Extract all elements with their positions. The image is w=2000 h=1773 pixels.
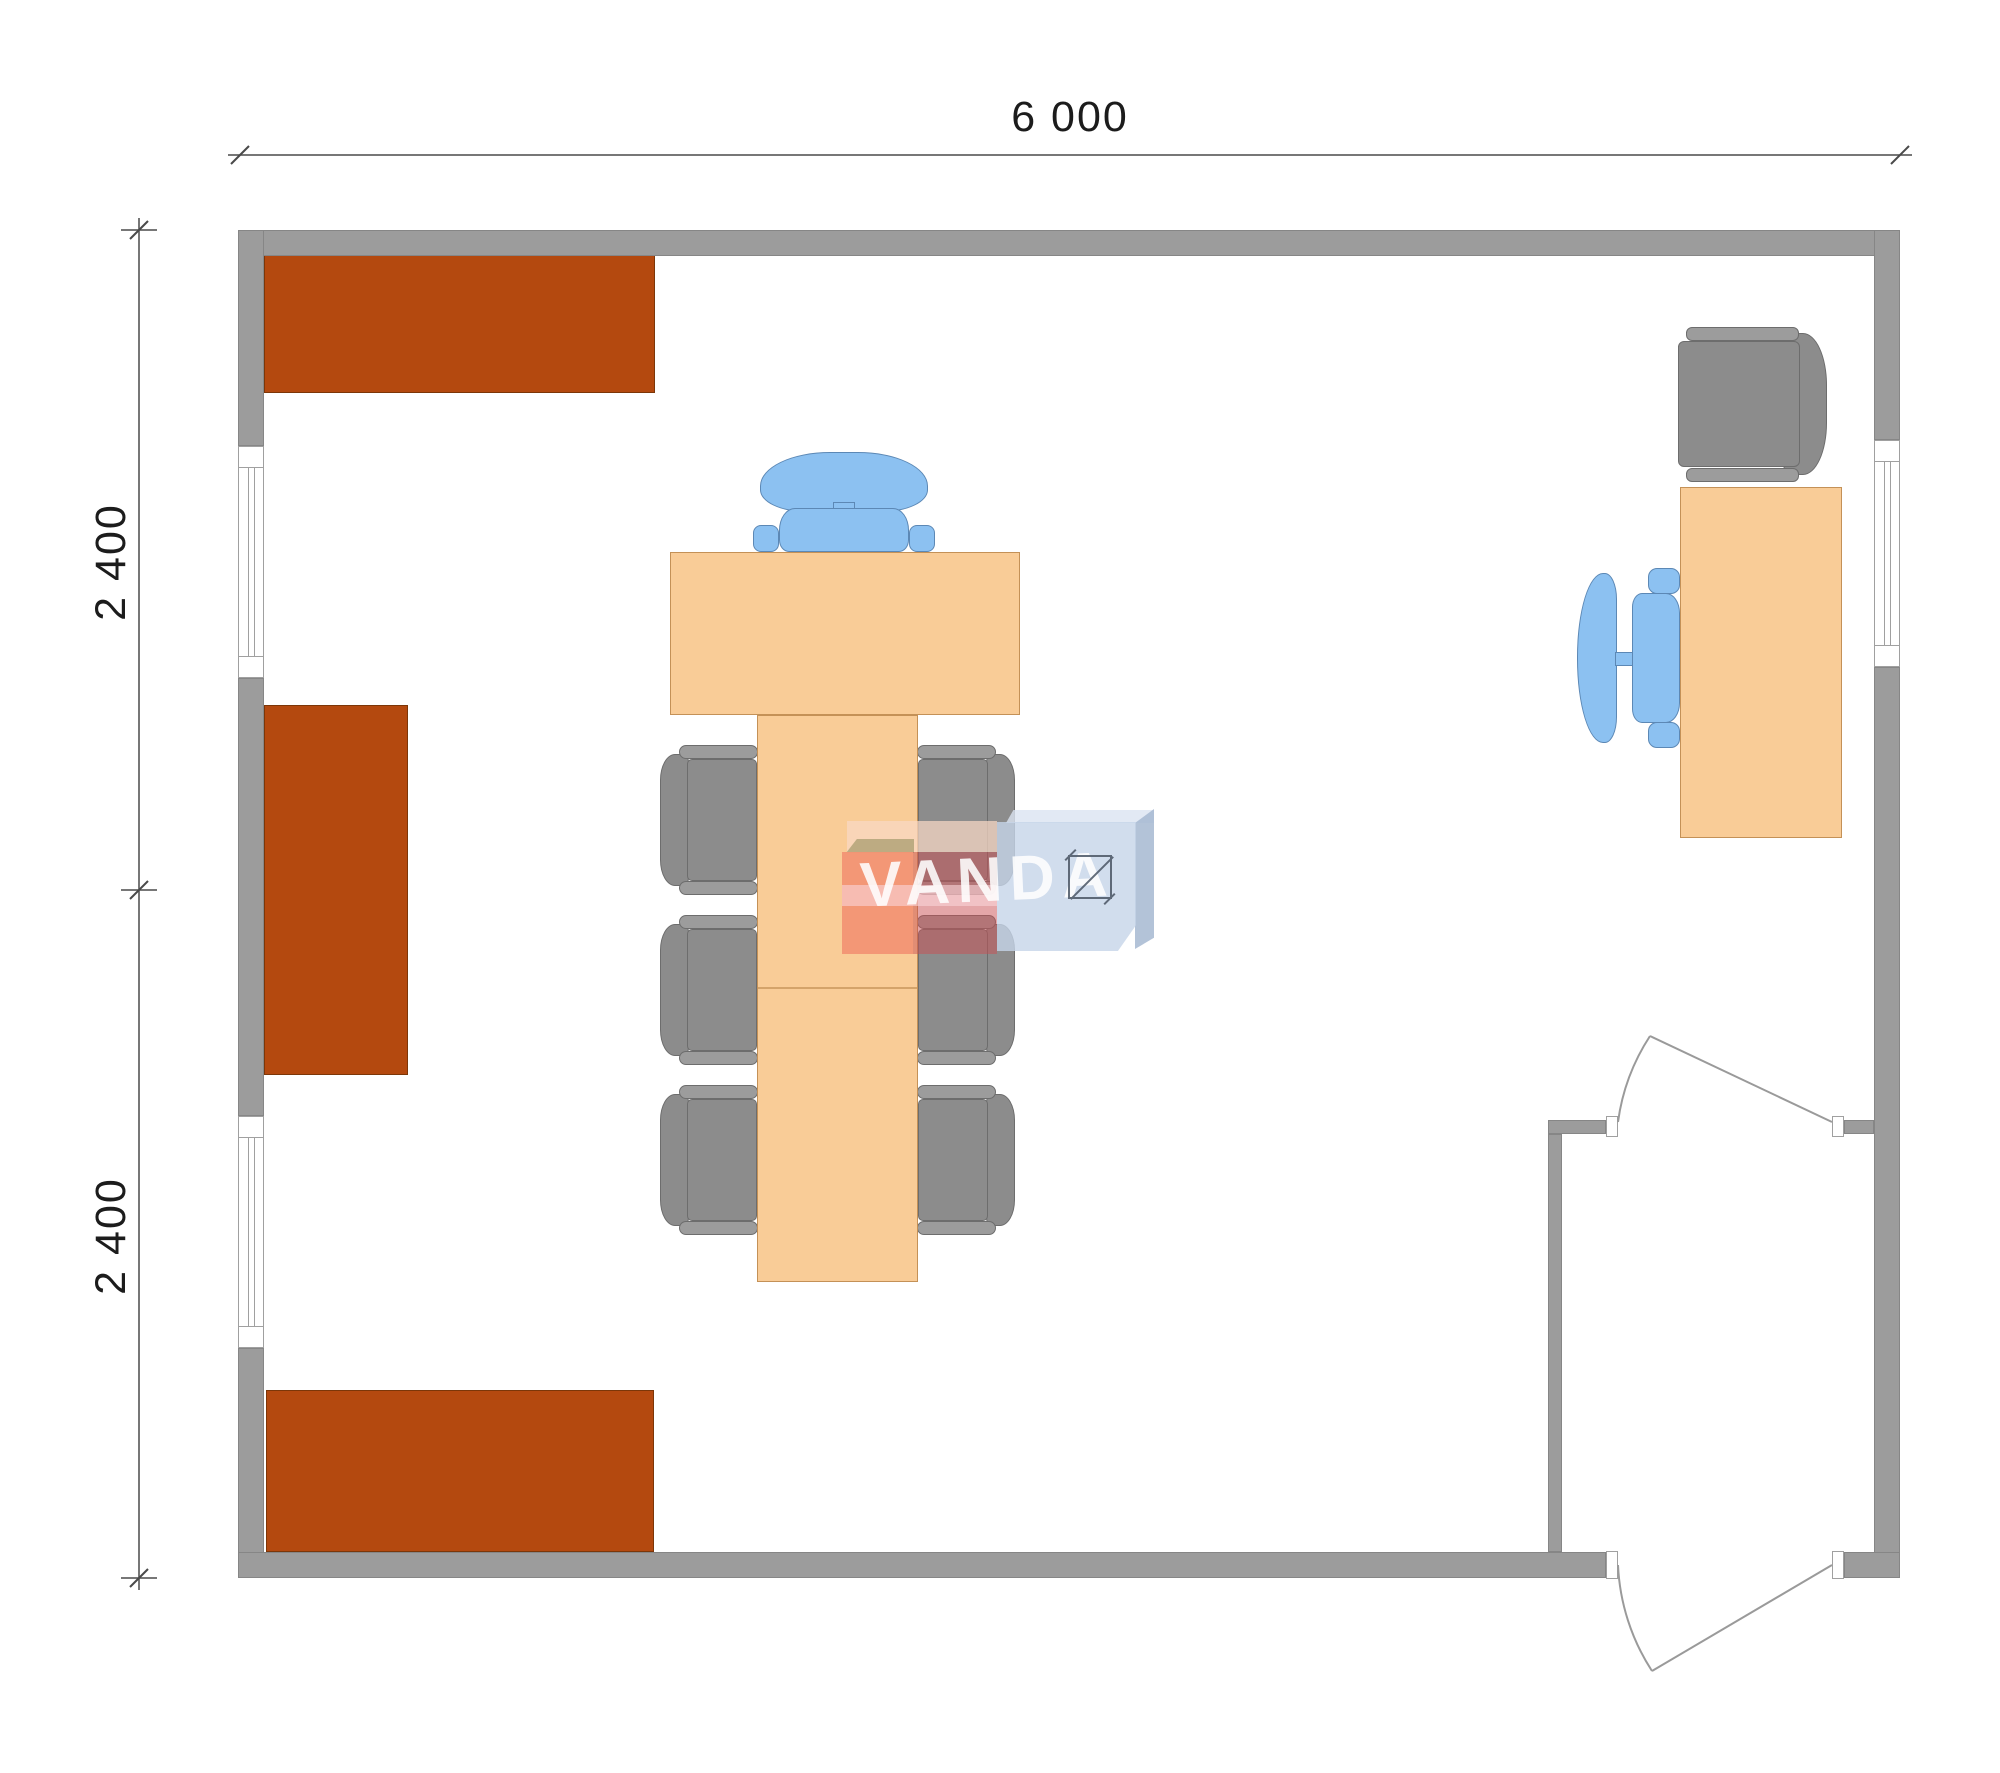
wall-bottom-segment-2 bbox=[1844, 1552, 1900, 1578]
conference-table-head bbox=[670, 552, 1020, 715]
chair-armrest bbox=[917, 745, 996, 759]
logo-blue-side-face bbox=[1135, 809, 1154, 949]
window-glazing bbox=[248, 1137, 255, 1327]
dimension-height-lower-label: 2 400 bbox=[87, 1126, 137, 1346]
wall-top bbox=[238, 230, 1900, 256]
chair-seat bbox=[918, 1099, 988, 1221]
vanda-watermark: VANDA bbox=[840, 805, 1162, 963]
wall-left-segment-1 bbox=[238, 230, 264, 446]
chair-armrest bbox=[917, 1051, 996, 1065]
window-right bbox=[1874, 440, 1900, 667]
chair-armrest bbox=[1648, 722, 1680, 748]
logo-square-diagonal-icon bbox=[1068, 855, 1112, 899]
window-frame-line bbox=[1875, 645, 1899, 646]
chair-armrest bbox=[1686, 327, 1799, 341]
chair-armrest bbox=[679, 1221, 758, 1235]
chair-armrest bbox=[917, 1085, 996, 1099]
entrance-door-jamb-left bbox=[1606, 1551, 1618, 1579]
window-frame-line bbox=[239, 1137, 263, 1138]
window-frame-line bbox=[1875, 461, 1899, 462]
entrance-door-swing bbox=[1618, 1565, 1832, 1671]
logo-blue-top-face bbox=[1006, 810, 1154, 823]
armchair bbox=[1678, 327, 1827, 482]
chair-armrest bbox=[679, 1085, 758, 1099]
cabinet-bottom bbox=[266, 1390, 654, 1552]
chair-back bbox=[660, 924, 689, 1056]
conference-table-long bbox=[757, 715, 918, 1282]
inner-door-swing bbox=[1618, 1036, 1832, 1122]
dimension-height-upper-label: 2 400 bbox=[87, 452, 137, 672]
chair-back bbox=[1577, 573, 1617, 743]
window-frame-line bbox=[239, 1326, 263, 1327]
chair-seat bbox=[687, 929, 757, 1051]
wall-bottom-segment-1 bbox=[238, 1552, 1606, 1578]
desk bbox=[1680, 487, 1842, 838]
chair-seat bbox=[1678, 341, 1800, 467]
dimension-width-label: 6 000 bbox=[970, 93, 1170, 142]
wall-right-segment-2 bbox=[1874, 667, 1900, 1578]
chair-armrest bbox=[909, 525, 935, 552]
window-glazing bbox=[1884, 461, 1891, 646]
wall-right-segment-1 bbox=[1874, 230, 1900, 440]
conference-chair-left-3 bbox=[660, 1085, 758, 1235]
chair-back bbox=[660, 754, 689, 886]
entrance-door-jamb-right bbox=[1832, 1551, 1844, 1579]
chair-back bbox=[986, 1094, 1015, 1226]
chair-armrest bbox=[917, 1221, 996, 1235]
conference-table-seam bbox=[758, 987, 917, 989]
vestibule-wall-top-right bbox=[1844, 1120, 1874, 1134]
chair-back bbox=[660, 1094, 689, 1226]
desk-chair bbox=[1577, 568, 1680, 748]
cabinet-top bbox=[264, 255, 655, 393]
window-left-lower bbox=[238, 1116, 264, 1348]
conference-head-chair bbox=[753, 452, 935, 552]
chair-seat bbox=[1632, 593, 1680, 723]
vestibule-wall-top-left bbox=[1548, 1120, 1606, 1134]
dimension-line-left bbox=[121, 218, 157, 1590]
chair-armrest bbox=[1648, 568, 1680, 594]
floor-plan: 6 000 2 400 2 400 bbox=[0, 0, 2000, 1773]
chair-neck bbox=[1615, 652, 1633, 666]
chair-armrest bbox=[679, 915, 758, 929]
conference-chair-left-1 bbox=[660, 745, 758, 895]
vestibule-wall-vertical bbox=[1548, 1134, 1562, 1552]
inner-door-jamb-left bbox=[1606, 1116, 1618, 1137]
conference-chair-left-2 bbox=[660, 915, 758, 1065]
chair-armrest bbox=[679, 745, 758, 759]
window-glazing bbox=[248, 467, 255, 657]
chair-armrest bbox=[679, 1051, 758, 1065]
chair-seat bbox=[687, 1099, 757, 1221]
wall-left-segment-2 bbox=[238, 678, 264, 1116]
window-left-upper bbox=[238, 446, 264, 678]
wall-left-segment-3 bbox=[238, 1348, 264, 1578]
inner-door-jamb-right bbox=[1832, 1116, 1844, 1137]
window-frame-line bbox=[239, 467, 263, 468]
chair-armrest bbox=[1686, 468, 1799, 482]
cabinet-middle bbox=[264, 705, 408, 1075]
dimension-line-top bbox=[228, 146, 1912, 164]
chair-seat bbox=[687, 759, 757, 881]
chair-seat bbox=[779, 508, 909, 552]
chair-armrest bbox=[679, 881, 758, 895]
window-frame-line bbox=[239, 656, 263, 657]
conference-chair-right-3 bbox=[917, 1085, 1015, 1235]
chair-armrest bbox=[753, 525, 779, 552]
